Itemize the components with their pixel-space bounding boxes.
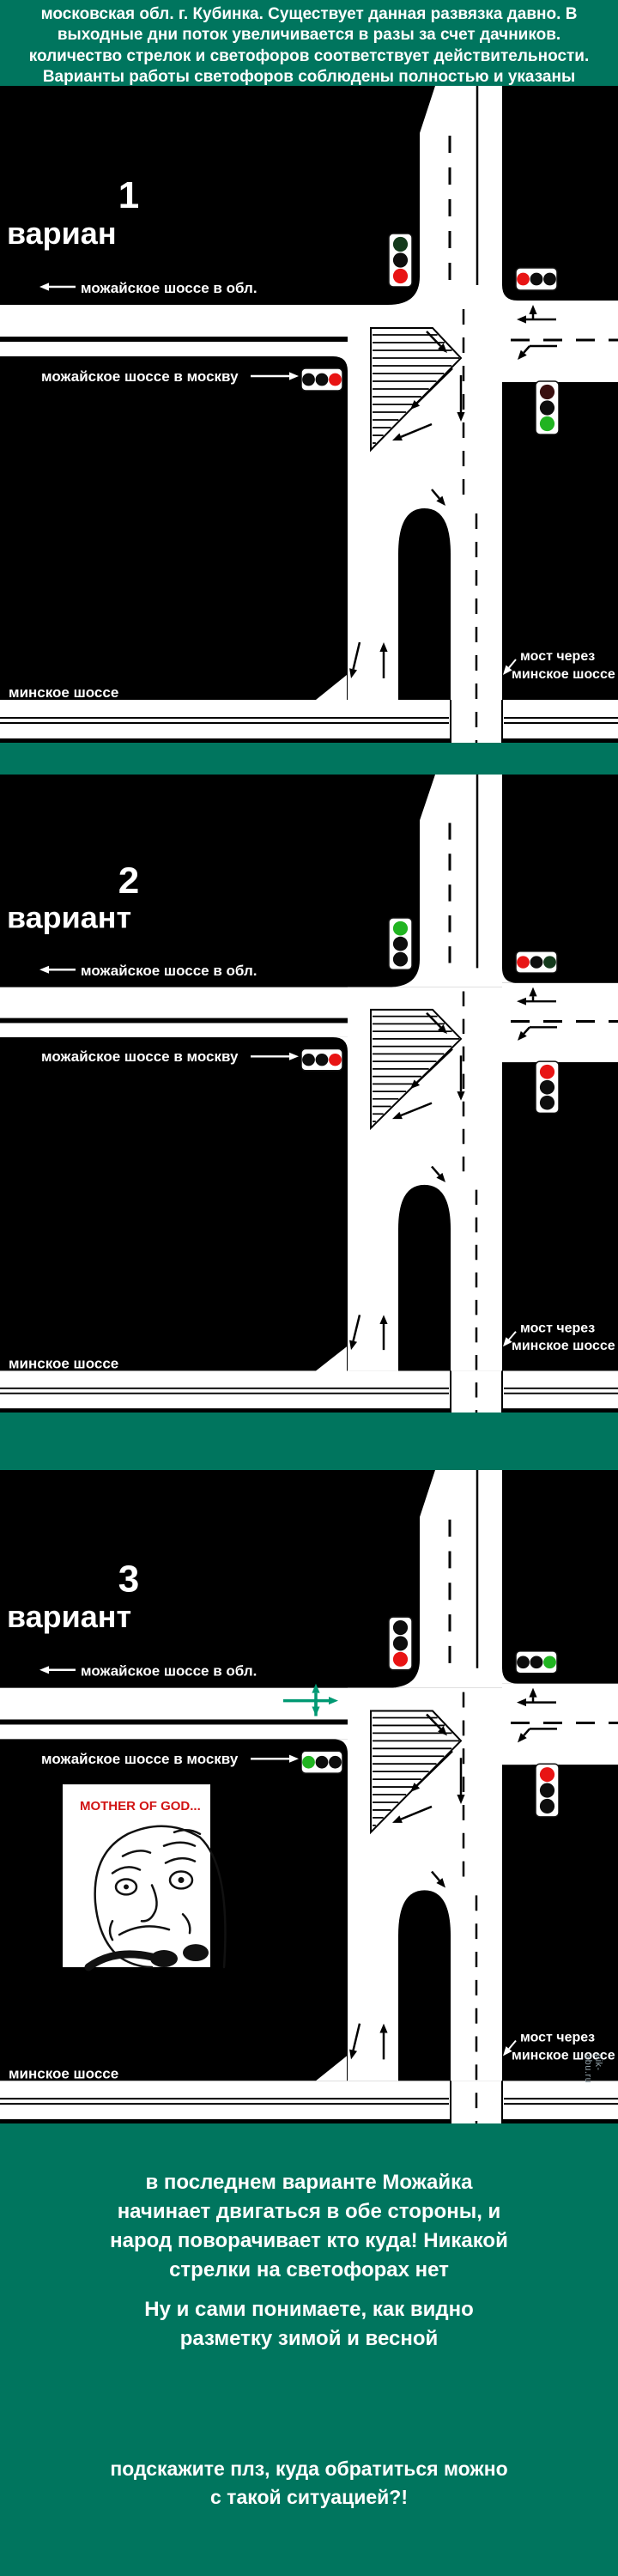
mozhaisk-road — [0, 1688, 395, 1740]
signal-lamp — [530, 1656, 543, 1668]
traffic-light-top-right — [516, 951, 557, 973]
interchange-diagram: 3вариантможайское шоссе в обл.можайское … — [0, 1470, 618, 2123]
signal-lamp — [393, 1620, 408, 1635]
signal-lamp — [540, 1080, 554, 1095]
traffic-light-to-moscow — [301, 1751, 342, 1773]
meme-image: MOTHER OF GOD... — [63, 1784, 225, 1967]
signal-lamp — [393, 1636, 408, 1650]
svg-text:можайское шоссе в москву: можайское шоссе в москву — [41, 1048, 239, 1065]
signal-lamp — [316, 1756, 329, 1769]
svg-text:минское шоссе: минское шоссе — [512, 667, 615, 682]
signal-lamp — [393, 252, 408, 267]
signal-lamp — [393, 269, 408, 283]
signal-lamp — [302, 374, 315, 386]
variant-title: вариант — [7, 1600, 131, 1634]
section-divider — [0, 1413, 618, 1470]
svg-text:можайское шоссе в москву: можайское шоссе в москву — [41, 1751, 239, 1767]
section-divider — [0, 743, 618, 775]
traffic-light-right — [536, 1061, 559, 1113]
svg-text:минское шоссе: минское шоссе — [512, 1339, 615, 1353]
signal-lamp — [543, 273, 556, 286]
minsk-highway-road — [0, 1370, 618, 1408]
variant-3-diagram: 3вариантможайское шоссе в обл.можайское … — [0, 1470, 618, 2123]
watermark: pik-abu.ru — [583, 2054, 603, 2083]
signal-lamp — [302, 1756, 315, 1769]
traffic-light-bridge — [389, 1617, 412, 1670]
signal-lamp — [530, 956, 543, 968]
traffic-light-right — [536, 381, 559, 434]
svg-text:можайское шоссе в обл.: можайское шоссе в обл. — [81, 963, 257, 979]
svg-text:можайское шоссе в обл.: можайское шоссе в обл. — [81, 280, 257, 296]
footer-line: разметку зимой и весной — [0, 2324, 618, 2354]
variant-number: 3 — [118, 1558, 139, 1600]
median-line — [0, 337, 348, 342]
variant-title: вариант — [7, 901, 131, 934]
signal-lamp — [329, 374, 342, 386]
footer-line: начинает двигаться в обе стороны, и — [0, 2197, 618, 2227]
signal-lamp — [393, 921, 408, 936]
mozhaisk-road — [0, 305, 395, 356]
footer-paragraph-1: в последнем варианте Можайканачинает дви… — [0, 2123, 618, 2285]
signal-lamp — [302, 1054, 315, 1066]
signal-lamp — [530, 273, 543, 286]
label-minsk: минское шоссе — [9, 1356, 118, 1372]
traffic-light-top-right — [516, 268, 557, 290]
signal-lamp — [540, 385, 554, 399]
svg-text:можайское шоссе в обл.: можайское шоссе в обл. — [81, 1663, 257, 1680]
footer-line: в последнем варианте Можайка — [0, 2168, 618, 2197]
minsk-highway-road — [0, 2081, 618, 2119]
label-minsk: минское шоссе — [9, 684, 118, 701]
signal-lamp — [393, 937, 408, 951]
signal-lamp — [543, 1656, 556, 1668]
traffic-light-right — [536, 1764, 559, 1817]
footer-line: с такой ситуацией?! — [0, 2483, 618, 2512]
traffic-light-bridge — [389, 234, 412, 287]
signal-lamp — [543, 956, 556, 968]
median-line — [0, 1719, 348, 1724]
footer-banner: в последнем варианте Можайканачинает дви… — [0, 2123, 618, 2576]
header-banner: московская обл. г. Кубинка. Существует д… — [0, 0, 618, 86]
interchange-diagram: 2вариантможайское шоссе в обл.можайское … — [0, 775, 618, 1413]
signal-lamp — [540, 1065, 554, 1079]
signal-lamp — [329, 1756, 342, 1769]
signal-lamp — [329, 1054, 342, 1066]
label-minsk: минское шоссе — [9, 2065, 118, 2081]
signal-lamp — [517, 956, 530, 968]
traffic-light-to-moscow — [301, 1049, 342, 1071]
signal-lamp — [393, 952, 408, 967]
signal-lamp — [540, 1783, 554, 1797]
traffic-light-top-right — [516, 1651, 557, 1674]
footer-paragraph-2: Ну и сами понимаете, как видноразметку з… — [0, 2285, 618, 2354]
signal-lamp — [517, 273, 530, 286]
signal-lamp — [517, 1656, 530, 1668]
traffic-light-to-moscow — [301, 368, 342, 391]
variant-number: 1 — [118, 174, 139, 216]
svg-text:можайское шоссе в москву: можайское шоссе в москву — [41, 368, 239, 385]
loop-island — [398, 1185, 451, 1371]
mozhaisk-road — [0, 987, 395, 1037]
signal-lamp — [316, 374, 329, 386]
variant-number: 2 — [118, 860, 139, 901]
traffic-light-bridge — [389, 918, 412, 969]
svg-text:мост через: мост через — [520, 1321, 595, 1336]
footer-line: Ну и сами понимаете, как видно — [0, 2295, 618, 2324]
minsk-highway-road — [0, 700, 618, 738]
footer-line: стрелки на светофорах нет — [0, 2256, 618, 2285]
svg-text:мост через: мост через — [520, 649, 595, 664]
footer-paragraph-3: подскажите плз, куда обратиться можнос т… — [0, 2354, 618, 2511]
variant-2-diagram: 2вариантможайское шоссе в обл.можайское … — [0, 775, 618, 1413]
interchange-diagram: 1варианможайское шоссе в обл.можайское ш… — [0, 86, 618, 743]
variant-1-diagram: 1варианможайское шоссе в обл.можайское ш… — [0, 86, 618, 743]
variant-title: вариан — [7, 216, 117, 251]
signal-lamp — [540, 1767, 554, 1782]
signal-lamp — [540, 1799, 554, 1814]
meme-page: московская обл. г. Кубинка. Существует д… — [0, 0, 618, 2576]
svg-text:мост через: мост через — [520, 2031, 595, 2045]
meme-caption: MOTHER OF GOD... — [80, 1799, 201, 1814]
signal-lamp — [316, 1054, 329, 1066]
signal-lamp — [393, 1652, 408, 1667]
signal-lamp — [540, 1096, 554, 1110]
median-line — [0, 1018, 348, 1024]
loop-island — [398, 1890, 451, 2081]
footer-line: подскажите плз, куда обратиться можно — [0, 2455, 618, 2483]
loop-island — [398, 508, 451, 700]
signal-lamp — [540, 416, 554, 431]
footer-line: народ поворачивает кто куда! Никакой — [0, 2227, 618, 2256]
signal-lamp — [540, 400, 554, 415]
signal-lamp — [393, 237, 408, 252]
